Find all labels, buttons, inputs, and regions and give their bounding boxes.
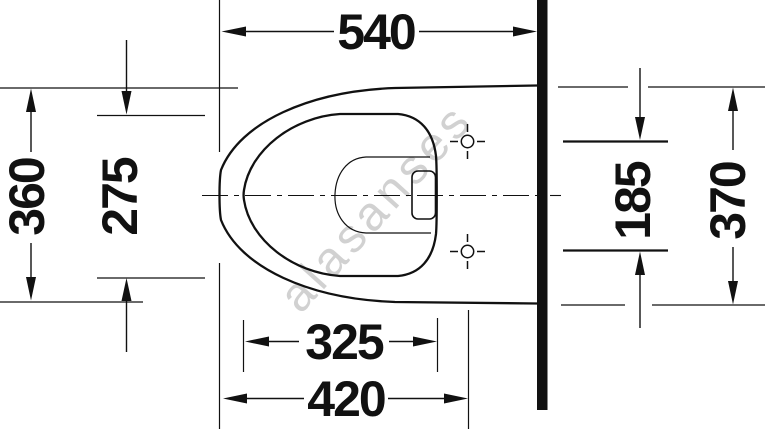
watermark-text: alasanses xyxy=(269,93,483,323)
dimension-540-label: 540 xyxy=(337,4,415,60)
dimension-325: 325 xyxy=(245,314,437,370)
dimension-185: 185 xyxy=(605,68,661,328)
dimension-360-label: 360 xyxy=(0,158,55,236)
dimension-420: 420 xyxy=(223,371,468,427)
toilet-dimension-diagram: alasanses xyxy=(0,0,765,429)
dimension-540: 540 xyxy=(222,4,538,60)
dimension-370: 370 xyxy=(700,88,756,305)
mounting-hole-bottom xyxy=(450,234,485,269)
dimension-325-label: 325 xyxy=(305,314,384,370)
dimension-420-label: 420 xyxy=(307,371,385,427)
dimension-275-label: 275 xyxy=(92,157,148,236)
dimension-275: 275 xyxy=(92,40,148,352)
dimension-370-label: 370 xyxy=(700,162,756,240)
dimension-360: 360 xyxy=(0,89,55,301)
wall-plate xyxy=(537,0,548,410)
dimension-185-label: 185 xyxy=(605,161,661,240)
technical-drawing-page: alasanses xyxy=(0,0,765,429)
